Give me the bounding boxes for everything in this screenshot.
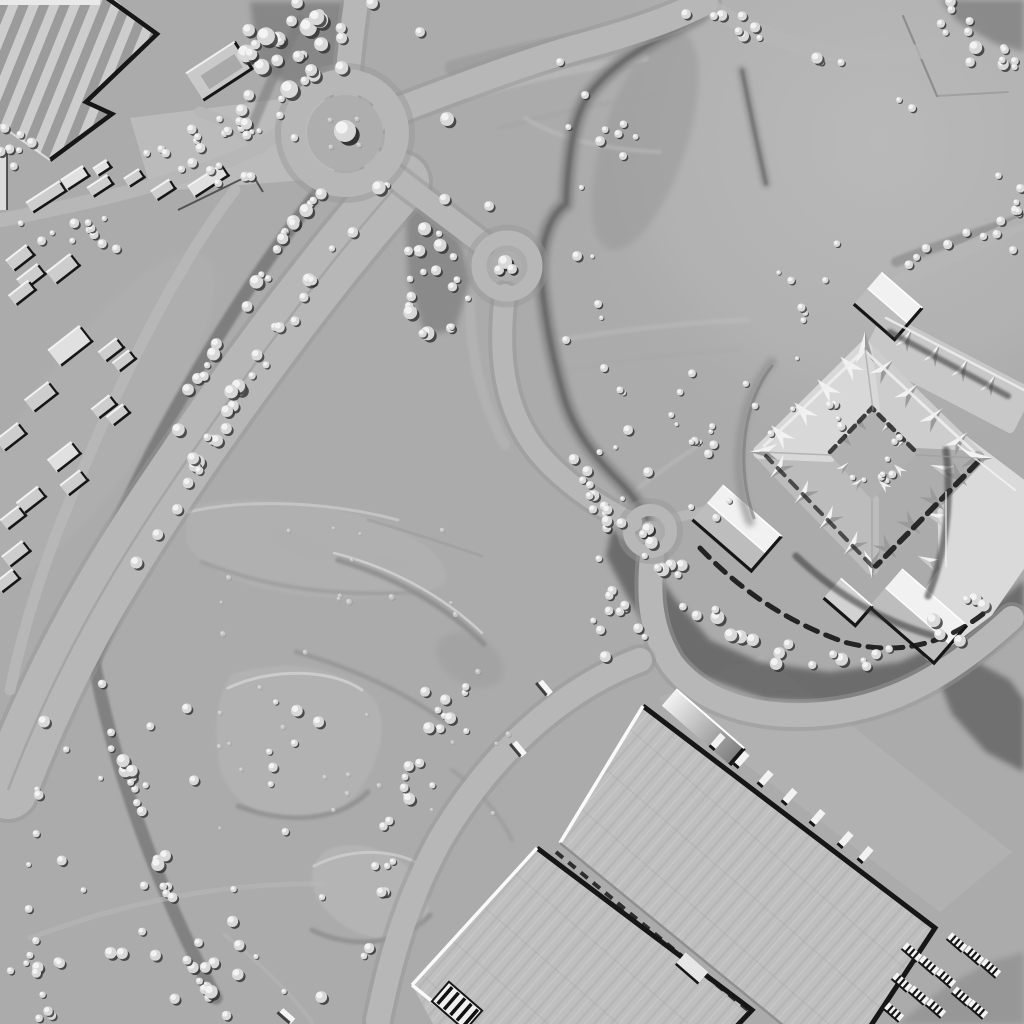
tree-highlight xyxy=(424,723,430,729)
tree-highlight xyxy=(506,732,509,735)
tree-highlight xyxy=(582,92,586,96)
tree-highlight xyxy=(251,40,256,45)
tree-highlight xyxy=(997,217,1002,222)
tree-highlight xyxy=(337,597,339,599)
tree-highlight xyxy=(204,362,208,366)
tree-highlight xyxy=(241,119,247,125)
tree-highlight xyxy=(710,13,714,17)
tree-highlight xyxy=(236,118,241,123)
tree-highlight xyxy=(17,131,21,135)
tree-highlight xyxy=(436,725,441,730)
tree-highlight xyxy=(152,859,159,866)
tree-highlight xyxy=(583,466,589,472)
tree-highlight xyxy=(441,695,447,701)
tree-highlight xyxy=(279,96,283,100)
tree-highlight xyxy=(966,58,971,63)
tree-highlight xyxy=(151,950,157,956)
tree-highlight xyxy=(117,755,124,762)
tree-highlight xyxy=(331,808,333,810)
tree-highlight xyxy=(24,961,27,964)
tree-highlight xyxy=(615,130,620,135)
tree-highlight xyxy=(269,763,274,768)
tree-highlight xyxy=(1,124,6,129)
roof-fragment xyxy=(0,0,100,5)
tree-highlight xyxy=(617,387,621,391)
tree-highlight xyxy=(677,560,683,566)
tree-highlight xyxy=(826,402,830,406)
tree-highlight xyxy=(36,1015,40,1019)
tree-highlight xyxy=(221,424,227,430)
tree-highlight xyxy=(579,185,582,188)
tree-highlight xyxy=(642,553,646,557)
tree-highlight xyxy=(160,851,166,857)
tree-highlight xyxy=(712,606,716,610)
tree-highlight xyxy=(25,905,29,909)
tree-highlight xyxy=(747,634,754,641)
tree-highlight xyxy=(441,713,445,717)
tree-highlight xyxy=(402,774,406,778)
tree-highlight xyxy=(449,324,453,328)
tree-highlight xyxy=(675,423,677,425)
tree-highlight xyxy=(386,817,391,822)
tree-highlight xyxy=(416,759,421,764)
tree-highlight xyxy=(963,596,968,601)
tree-highlight xyxy=(441,113,449,121)
tree-highlight xyxy=(599,316,602,319)
tree-highlight xyxy=(445,713,451,719)
tree-highlight xyxy=(265,275,269,279)
tree-highlight xyxy=(247,173,252,178)
tree-highlight xyxy=(892,439,896,443)
tree-highlight xyxy=(944,240,949,245)
tree-highlight xyxy=(596,137,602,143)
tree-highlight xyxy=(970,42,977,49)
tree-highlight xyxy=(751,23,757,29)
tree-highlight xyxy=(430,783,433,786)
tree-highlight xyxy=(113,245,118,250)
tree-highlight xyxy=(163,890,167,894)
roof-fragment xyxy=(0,150,7,210)
tree-highlight xyxy=(654,564,658,568)
tree-highlight xyxy=(373,182,381,190)
tree-highlight xyxy=(329,246,333,250)
tree-highlight xyxy=(208,348,215,355)
tree-highlight xyxy=(7,968,11,972)
tree-highlight xyxy=(98,680,103,685)
tree-highlight xyxy=(384,863,388,867)
tree-highlight xyxy=(880,472,883,475)
tree-highlight xyxy=(372,862,377,867)
tree-highlight xyxy=(963,229,968,234)
tree-highlight xyxy=(768,431,772,435)
tree-highlight xyxy=(196,978,200,982)
tree-highlight xyxy=(337,33,343,39)
tree-highlight xyxy=(306,65,313,72)
tree-highlight xyxy=(217,116,221,120)
tree-highlight xyxy=(440,194,446,200)
tree-highlight xyxy=(405,247,410,252)
tree-highlight xyxy=(258,685,261,688)
tree-highlight xyxy=(669,412,672,415)
tree-highlight xyxy=(204,434,208,438)
tree-highlight xyxy=(249,373,253,377)
tree-highlight xyxy=(220,601,222,603)
tree-highlight xyxy=(35,787,38,790)
tree-highlight xyxy=(586,481,590,485)
tree-highlight xyxy=(244,90,250,96)
tree-highlight xyxy=(108,729,112,733)
tree-highlight xyxy=(837,423,842,428)
hillshade-map xyxy=(0,0,1024,1024)
tree-highlight xyxy=(259,272,262,275)
tree-highlight xyxy=(105,948,112,955)
tree-highlight xyxy=(336,23,342,29)
tree-highlight xyxy=(774,648,780,654)
tree-highlight xyxy=(614,445,617,448)
tree-highlight xyxy=(586,492,590,496)
tree-highlight xyxy=(251,276,259,284)
tree-highlight xyxy=(357,143,360,146)
tree-highlight xyxy=(347,599,350,602)
tree-highlight xyxy=(450,253,454,257)
tree-highlight xyxy=(201,963,207,969)
tree-highlight xyxy=(896,434,900,438)
tree-highlight xyxy=(33,937,37,941)
tree-highlight xyxy=(50,231,53,234)
tree-highlight xyxy=(677,389,681,393)
tree-highlight xyxy=(980,233,984,237)
tree-highlight xyxy=(889,471,893,475)
tree-highlight xyxy=(143,782,147,786)
tree-highlight xyxy=(26,862,29,865)
tree-highlight xyxy=(233,969,239,975)
tree-highlight xyxy=(620,153,624,157)
tree-highlight xyxy=(205,986,212,993)
tree-highlight xyxy=(476,669,479,672)
tree-highlight xyxy=(144,150,148,154)
tree-highlight xyxy=(689,440,692,443)
tree-highlight xyxy=(85,220,89,224)
tree-highlight xyxy=(943,30,946,33)
tree-highlight xyxy=(282,989,285,992)
tree-highlight xyxy=(182,704,187,709)
tree-highlight xyxy=(798,304,803,309)
tree-highlight xyxy=(33,830,37,834)
tree-highlight xyxy=(315,38,323,46)
tree-highlight xyxy=(39,716,46,723)
tree-highlight xyxy=(955,635,962,642)
tree-highlight xyxy=(209,958,215,964)
tree-highlight xyxy=(430,808,432,810)
tree-highlight xyxy=(98,776,101,779)
tree-highlight xyxy=(999,57,1003,61)
tree-highlight xyxy=(275,323,281,329)
tree-highlight xyxy=(250,130,253,133)
tree-highlight xyxy=(495,742,497,744)
tree-highlight xyxy=(1011,57,1015,61)
tree-highlight xyxy=(332,527,334,529)
tree-highlight xyxy=(257,129,260,132)
tree-highlight xyxy=(170,994,176,1000)
tree-highlight xyxy=(643,524,650,531)
tree-highlight xyxy=(273,246,278,251)
tree-highlight xyxy=(1012,64,1016,68)
tree-highlight xyxy=(63,747,67,751)
tree-highlight xyxy=(277,112,281,116)
tree-highlight xyxy=(292,706,298,712)
tree-highlight xyxy=(491,811,493,813)
tree-highlight xyxy=(183,384,190,391)
tree-highlight xyxy=(365,944,371,950)
tree-highlight xyxy=(81,887,84,890)
tree-highlight xyxy=(56,959,61,964)
tree-highlight xyxy=(557,59,561,63)
tree-highlight xyxy=(300,204,308,212)
tree-highlight xyxy=(281,725,284,728)
tree-highlight xyxy=(193,374,199,380)
tree-highlight xyxy=(624,426,630,432)
tree-highlight xyxy=(435,240,442,247)
tree-highlight xyxy=(308,276,313,281)
tree-highlight xyxy=(790,407,793,410)
tree-highlight xyxy=(355,117,358,120)
tree-highlight xyxy=(183,956,188,961)
tree-highlight xyxy=(738,12,743,17)
tree-highlight xyxy=(617,519,623,525)
tree-highlight xyxy=(727,498,730,501)
tree-highlight xyxy=(293,51,299,57)
tree-highlight xyxy=(448,283,453,288)
tree-highlight xyxy=(282,828,286,832)
tree-highlight xyxy=(254,954,257,957)
tree-highlight xyxy=(314,717,320,723)
tree-highlight xyxy=(596,626,601,631)
tree-highlight xyxy=(996,173,1000,177)
tree-highlight xyxy=(134,799,138,803)
tree-highlight xyxy=(834,241,838,245)
tree-highlight xyxy=(300,293,305,298)
tree-highlight xyxy=(200,372,205,377)
tree-highlight xyxy=(188,125,193,130)
tree-highlight xyxy=(338,594,340,596)
tree-highlight xyxy=(128,779,132,783)
tree-highlight xyxy=(273,700,276,703)
tree-highlight xyxy=(449,601,451,603)
tree-highlight xyxy=(928,614,936,622)
tree-highlight xyxy=(131,557,138,564)
tree-highlight xyxy=(196,143,201,148)
tree-highlight xyxy=(44,1007,49,1012)
tree-highlight xyxy=(421,687,426,692)
tree-highlight xyxy=(1014,200,1017,203)
tree-highlight xyxy=(905,261,910,266)
tree-highlight xyxy=(499,256,507,264)
tree-highlight xyxy=(336,62,343,69)
tree-highlight xyxy=(301,20,311,30)
tree-highlight xyxy=(329,145,332,148)
tree-highlight xyxy=(935,630,941,636)
tree-highlight xyxy=(454,277,458,281)
tree-highlight xyxy=(809,661,814,666)
tree-highlight xyxy=(634,624,639,629)
tree-highlight xyxy=(243,131,248,136)
tree-highlight xyxy=(603,506,608,511)
tree-highlight xyxy=(705,450,710,455)
tree-highlight xyxy=(862,478,865,481)
tree-highlight xyxy=(788,277,792,281)
tree-highlight xyxy=(464,728,467,731)
tree-highlight xyxy=(291,134,295,138)
tree-highlight xyxy=(606,592,611,597)
tree-highlight xyxy=(419,223,426,230)
tree-highlight xyxy=(168,893,174,899)
tree-highlight xyxy=(485,202,491,208)
tree-highlight xyxy=(692,611,698,617)
tree-highlight xyxy=(16,147,19,150)
tree-highlight xyxy=(40,992,44,996)
tree-highlight xyxy=(140,882,145,887)
tree-highlight xyxy=(777,271,780,274)
tree-highlight xyxy=(508,265,514,271)
tree-highlight xyxy=(914,254,918,258)
tree-highlight xyxy=(390,859,394,863)
tree-highlight xyxy=(303,650,306,653)
tree-highlight xyxy=(948,6,952,10)
tree-highlight xyxy=(70,238,73,241)
tree-highlight xyxy=(605,607,610,612)
tree-highlight xyxy=(377,783,380,786)
tree-highlight xyxy=(117,948,123,954)
tree-highlight xyxy=(235,940,241,946)
tree-highlight xyxy=(102,216,105,219)
tree-highlight xyxy=(162,149,167,154)
tree-highlight xyxy=(227,742,229,744)
tree-highlight xyxy=(222,406,229,413)
tree-highlight xyxy=(252,350,258,356)
tree-highlight xyxy=(246,49,253,56)
tree-highlight xyxy=(188,158,193,163)
tree-highlight xyxy=(964,28,969,33)
tree-highlight xyxy=(212,435,219,442)
tree-highlight xyxy=(194,134,198,138)
tree-highlight xyxy=(1015,208,1019,212)
tree-highlight xyxy=(239,768,241,770)
tree-highlight xyxy=(620,497,623,500)
tree-highlight xyxy=(909,105,913,109)
tree-highlight xyxy=(70,219,75,224)
tree-highlight xyxy=(407,292,412,297)
tree-highlight xyxy=(440,528,443,531)
tree-highlight xyxy=(215,180,219,184)
tree-highlight xyxy=(231,886,235,890)
tree-highlight xyxy=(838,59,842,63)
tree-highlight xyxy=(268,782,271,785)
tree-highlight xyxy=(435,707,439,711)
tree-highlight xyxy=(823,277,827,281)
tree-highlight xyxy=(108,746,112,750)
tree-highlight xyxy=(323,775,325,777)
tree-highlight xyxy=(752,403,756,407)
tree-highlight xyxy=(272,55,279,62)
tree-highlight xyxy=(217,744,220,747)
tree-highlight xyxy=(1010,247,1014,251)
tree-highlight xyxy=(591,618,594,621)
tree-highlight xyxy=(139,928,143,932)
tree-highlight xyxy=(862,662,867,667)
tree-highlight xyxy=(225,386,233,394)
tree-highlight xyxy=(595,301,599,305)
tree-highlight xyxy=(886,646,890,650)
tree-highlight xyxy=(709,429,712,432)
tree-highlight xyxy=(266,749,269,752)
tree-highlight xyxy=(713,514,717,518)
tree-highlight xyxy=(872,650,878,656)
tree-highlight xyxy=(563,337,567,341)
tree-highlight xyxy=(836,416,839,419)
tree-highlight xyxy=(242,302,248,308)
tree-highlight xyxy=(710,441,715,446)
tree-highlight xyxy=(1017,184,1022,189)
tree-highlight xyxy=(620,121,624,125)
tree-highlight xyxy=(688,504,691,507)
tree-highlight xyxy=(310,11,318,19)
tree-highlight xyxy=(316,189,322,195)
tree-highlight xyxy=(27,138,33,144)
tree-highlight xyxy=(282,81,292,91)
tree-highlight xyxy=(222,1011,227,1016)
tree-highlight xyxy=(601,365,605,369)
tree-highlight xyxy=(616,608,621,613)
tree-highlight xyxy=(725,629,732,636)
tree-highlight xyxy=(10,163,14,167)
tree-highlight xyxy=(640,531,644,535)
tree-highlight xyxy=(812,53,818,59)
tree-highlight xyxy=(404,306,412,314)
tree-highlight xyxy=(258,28,268,38)
tree-highlight xyxy=(710,424,713,427)
tree-highlight xyxy=(680,603,684,607)
tree-highlight xyxy=(263,362,267,366)
tree-highlight xyxy=(278,234,284,240)
tree-highlight xyxy=(287,16,293,22)
tree-highlight xyxy=(206,166,211,171)
tree-highlight xyxy=(316,992,322,998)
tree-highlight xyxy=(153,530,159,536)
tree-highlight xyxy=(226,575,229,578)
tree-highlight xyxy=(377,888,383,894)
tree-highlight xyxy=(190,776,195,781)
tree-highlight xyxy=(158,146,162,150)
tree-highlight xyxy=(365,713,367,715)
tree-highlight xyxy=(361,953,365,957)
tree-highlight xyxy=(861,658,864,661)
tree-highlight xyxy=(416,28,422,34)
tree-highlight xyxy=(5,145,10,150)
tree-highlight xyxy=(57,856,63,862)
tree-highlight xyxy=(589,506,594,511)
tree-highlight xyxy=(608,587,613,592)
tree-highlight xyxy=(301,77,306,82)
tree-highlight xyxy=(801,318,804,321)
tree-highlight xyxy=(224,127,229,132)
tree-highlight xyxy=(784,640,790,646)
tree-highlight xyxy=(18,221,21,224)
tree-highlight xyxy=(642,634,645,637)
tree-highlight xyxy=(743,381,747,385)
tree-highlight xyxy=(328,118,331,121)
tree-highlight xyxy=(436,231,440,235)
tree-highlight xyxy=(978,600,985,607)
